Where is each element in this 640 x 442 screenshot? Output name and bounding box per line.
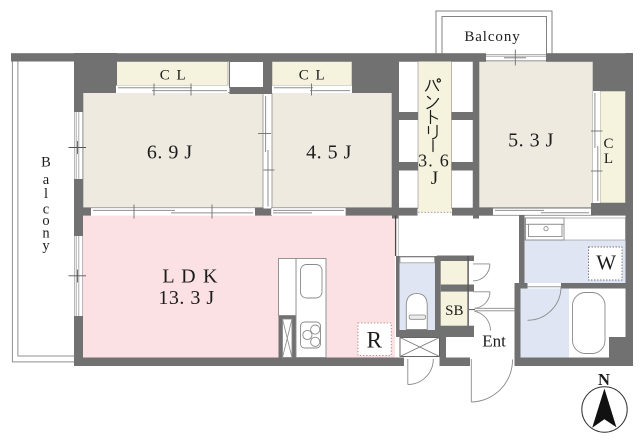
svg-text:W: W <box>596 251 616 275</box>
svg-text:13. 3 J: 13. 3 J <box>158 287 214 309</box>
svg-text:Balcony: Balcony <box>464 29 520 45</box>
svg-text:C L: C L <box>160 67 187 83</box>
svg-text:L: L <box>604 151 613 167</box>
svg-text:C L: C L <box>299 67 326 83</box>
svg-text:C: C <box>603 136 613 152</box>
svg-text:R: R <box>367 328 383 353</box>
svg-text:Ent: Ent <box>482 332 506 351</box>
svg-text:5. 3 J: 5. 3 J <box>508 130 554 152</box>
svg-text:4. 5 J: 4. 5 J <box>306 142 352 164</box>
svg-text:N: N <box>598 370 610 389</box>
svg-text:y: y <box>42 238 50 254</box>
svg-text:SB: SB <box>445 303 463 319</box>
svg-text:l: l <box>44 186 48 202</box>
svg-text:6. 9 J: 6. 9 J <box>147 142 193 164</box>
svg-text:L D K: L D K <box>162 265 218 287</box>
svg-text:B: B <box>41 155 51 171</box>
svg-text:J: J <box>431 168 438 189</box>
